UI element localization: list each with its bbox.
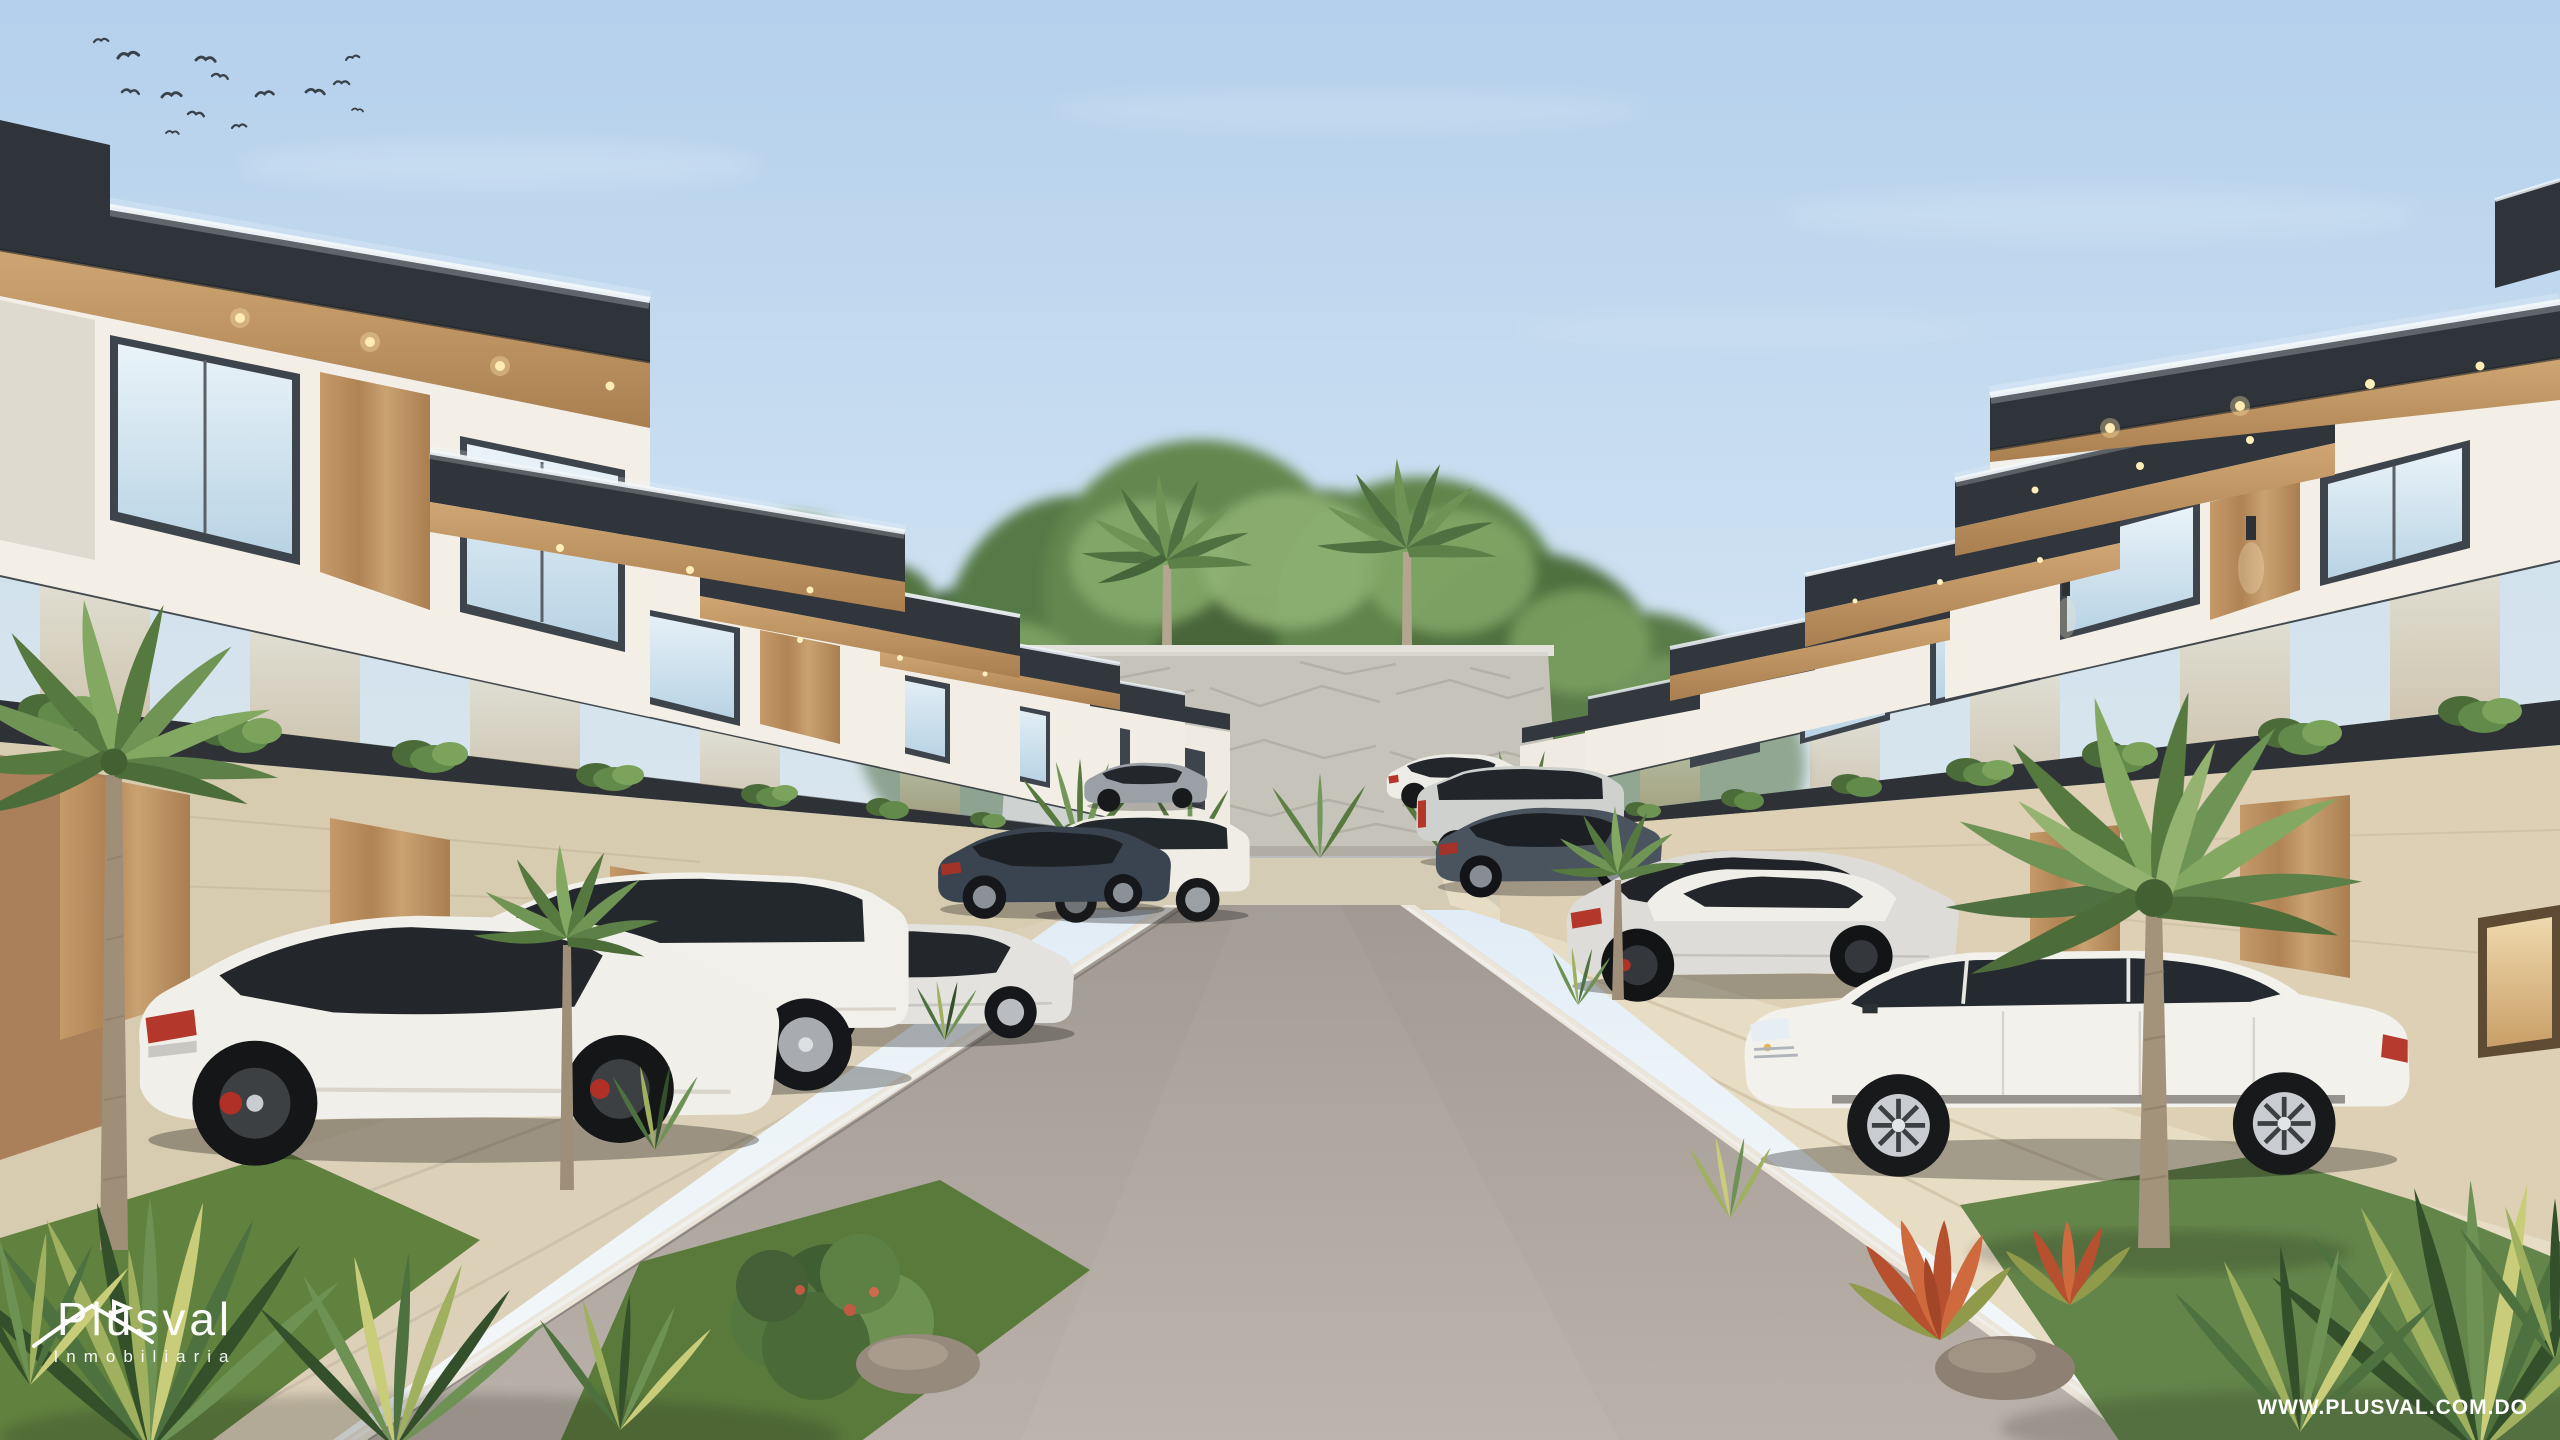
plusval-logo: Plusval Inmobiliaria bbox=[30, 1298, 260, 1367]
logo-roof-icon bbox=[30, 1298, 158, 1354]
wood-accent bbox=[760, 630, 840, 744]
wood-accent bbox=[320, 372, 430, 610]
wall-sconce bbox=[2246, 516, 2256, 540]
scene-canvas bbox=[0, 0, 2560, 1440]
render-scene: Plusval Inmobiliaria WWW.PLUSVAL.COM.DO bbox=[0, 0, 2560, 1440]
website-url: WWW.PLUSVAL.COM.DO bbox=[2257, 1396, 2528, 1420]
